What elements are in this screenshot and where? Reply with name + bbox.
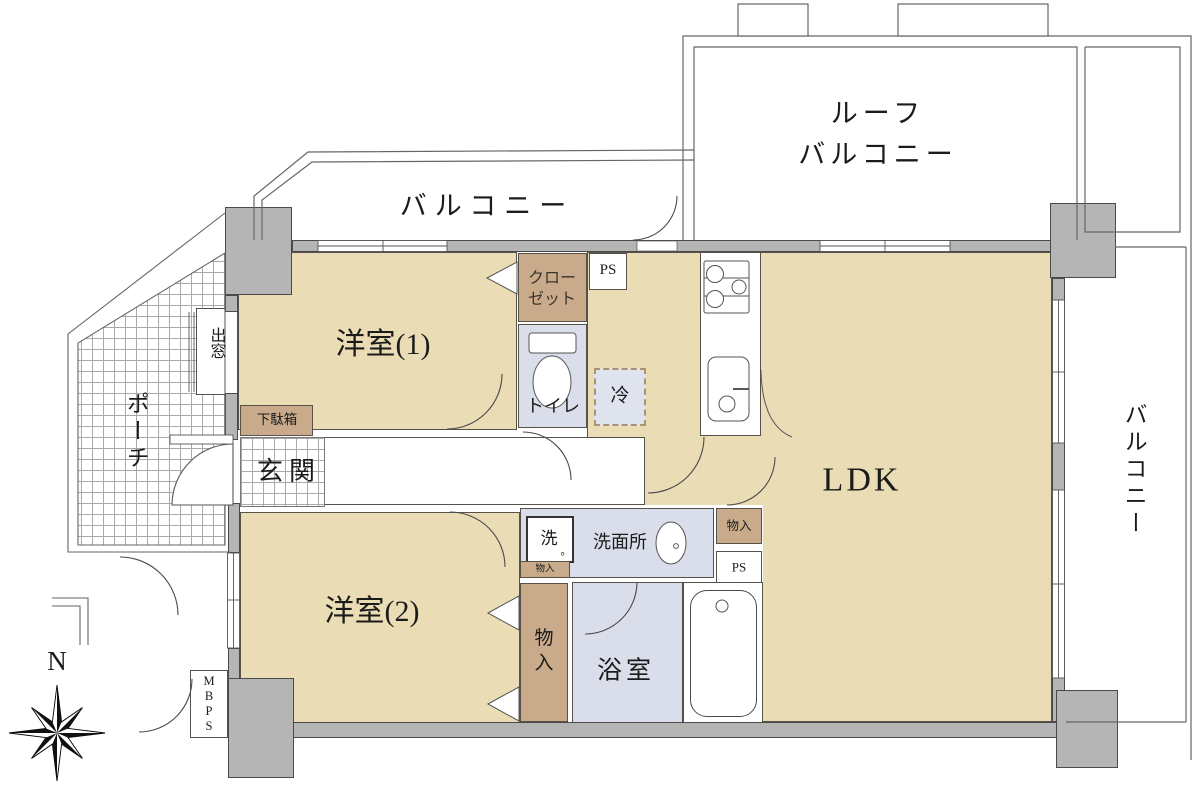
floorplan: バルコニー ルーフ バルコニー 洋室(1) クロー ゼット PS トイレ 冷 出…: [0, 0, 1200, 792]
window-ldk-right-upper: [1053, 300, 1065, 443]
washbasin-icon: [656, 522, 686, 564]
label-ps-mid: PS: [732, 558, 746, 575]
label-ldk: LDK: [823, 459, 902, 504]
label-storage-closet: 物 入: [534, 626, 553, 676]
door-arc-ldk: [648, 437, 704, 493]
door-arc-washroom: [727, 457, 775, 505]
kitchen-sink-icon: [708, 357, 749, 421]
door-arc-room2: [450, 512, 505, 567]
label-washroom: 洗面所: [593, 531, 647, 555]
label-washer-period: 。: [561, 545, 572, 560]
label-bathroom: 浴室: [597, 655, 655, 688]
label-meter-box: M B P S: [203, 674, 214, 734]
roof-balcony-door-opening: [637, 241, 677, 251]
label-storage-mini: 物入: [535, 564, 554, 577]
window-room2-left: [228, 553, 240, 648]
label-compass-north: N: [47, 644, 67, 680]
label-entrance: 玄関: [257, 455, 321, 489]
label-bay-window: 出窓: [205, 327, 226, 359]
label-closet: クロー ゼット: [528, 268, 576, 310]
door-arc-roof-balcony: [633, 196, 677, 240]
label-storage-ldk: 物入: [726, 518, 751, 535]
label-shoe-cabinet: 下駄箱: [257, 411, 298, 429]
door-arc-porch-gate: [120, 557, 178, 615]
bathtub-faucet-hole: [716, 600, 728, 612]
label-roof-balcony: ルーフ バルコニー: [798, 94, 957, 175]
stove-icon: [704, 261, 749, 313]
door-arc-room1: [447, 374, 502, 429]
label-refrigerator: 冷: [610, 383, 629, 408]
label-western-room-1: 洋室(1): [336, 325, 431, 365]
label-balcony-top: バルコニー: [400, 189, 574, 225]
window-bay-glazing: [189, 312, 194, 392]
door-arc-bathroom: [585, 582, 637, 634]
label-washer: 洗: [541, 528, 558, 550]
compass-icon: [9, 685, 105, 781]
kitchen-counter-curve: [761, 370, 792, 437]
door-arc-toilet: [523, 432, 571, 480]
window-ldk-top: [820, 241, 950, 252]
window-ldk-right-lower: [1053, 490, 1065, 678]
label-western-room-2: 洋室(2): [325, 592, 420, 632]
window-room1-top: [318, 241, 447, 252]
door-arc-meter-box: [139, 679, 192, 732]
label-toilet: トイレ: [526, 395, 580, 419]
closet-fold-markers: [487, 262, 519, 721]
label-balcony-right: バルコニー: [1118, 403, 1148, 538]
entrance-door: [170, 435, 233, 505]
label-porch: ポーチ: [120, 392, 150, 473]
label-ps-top: PS: [600, 261, 617, 281]
